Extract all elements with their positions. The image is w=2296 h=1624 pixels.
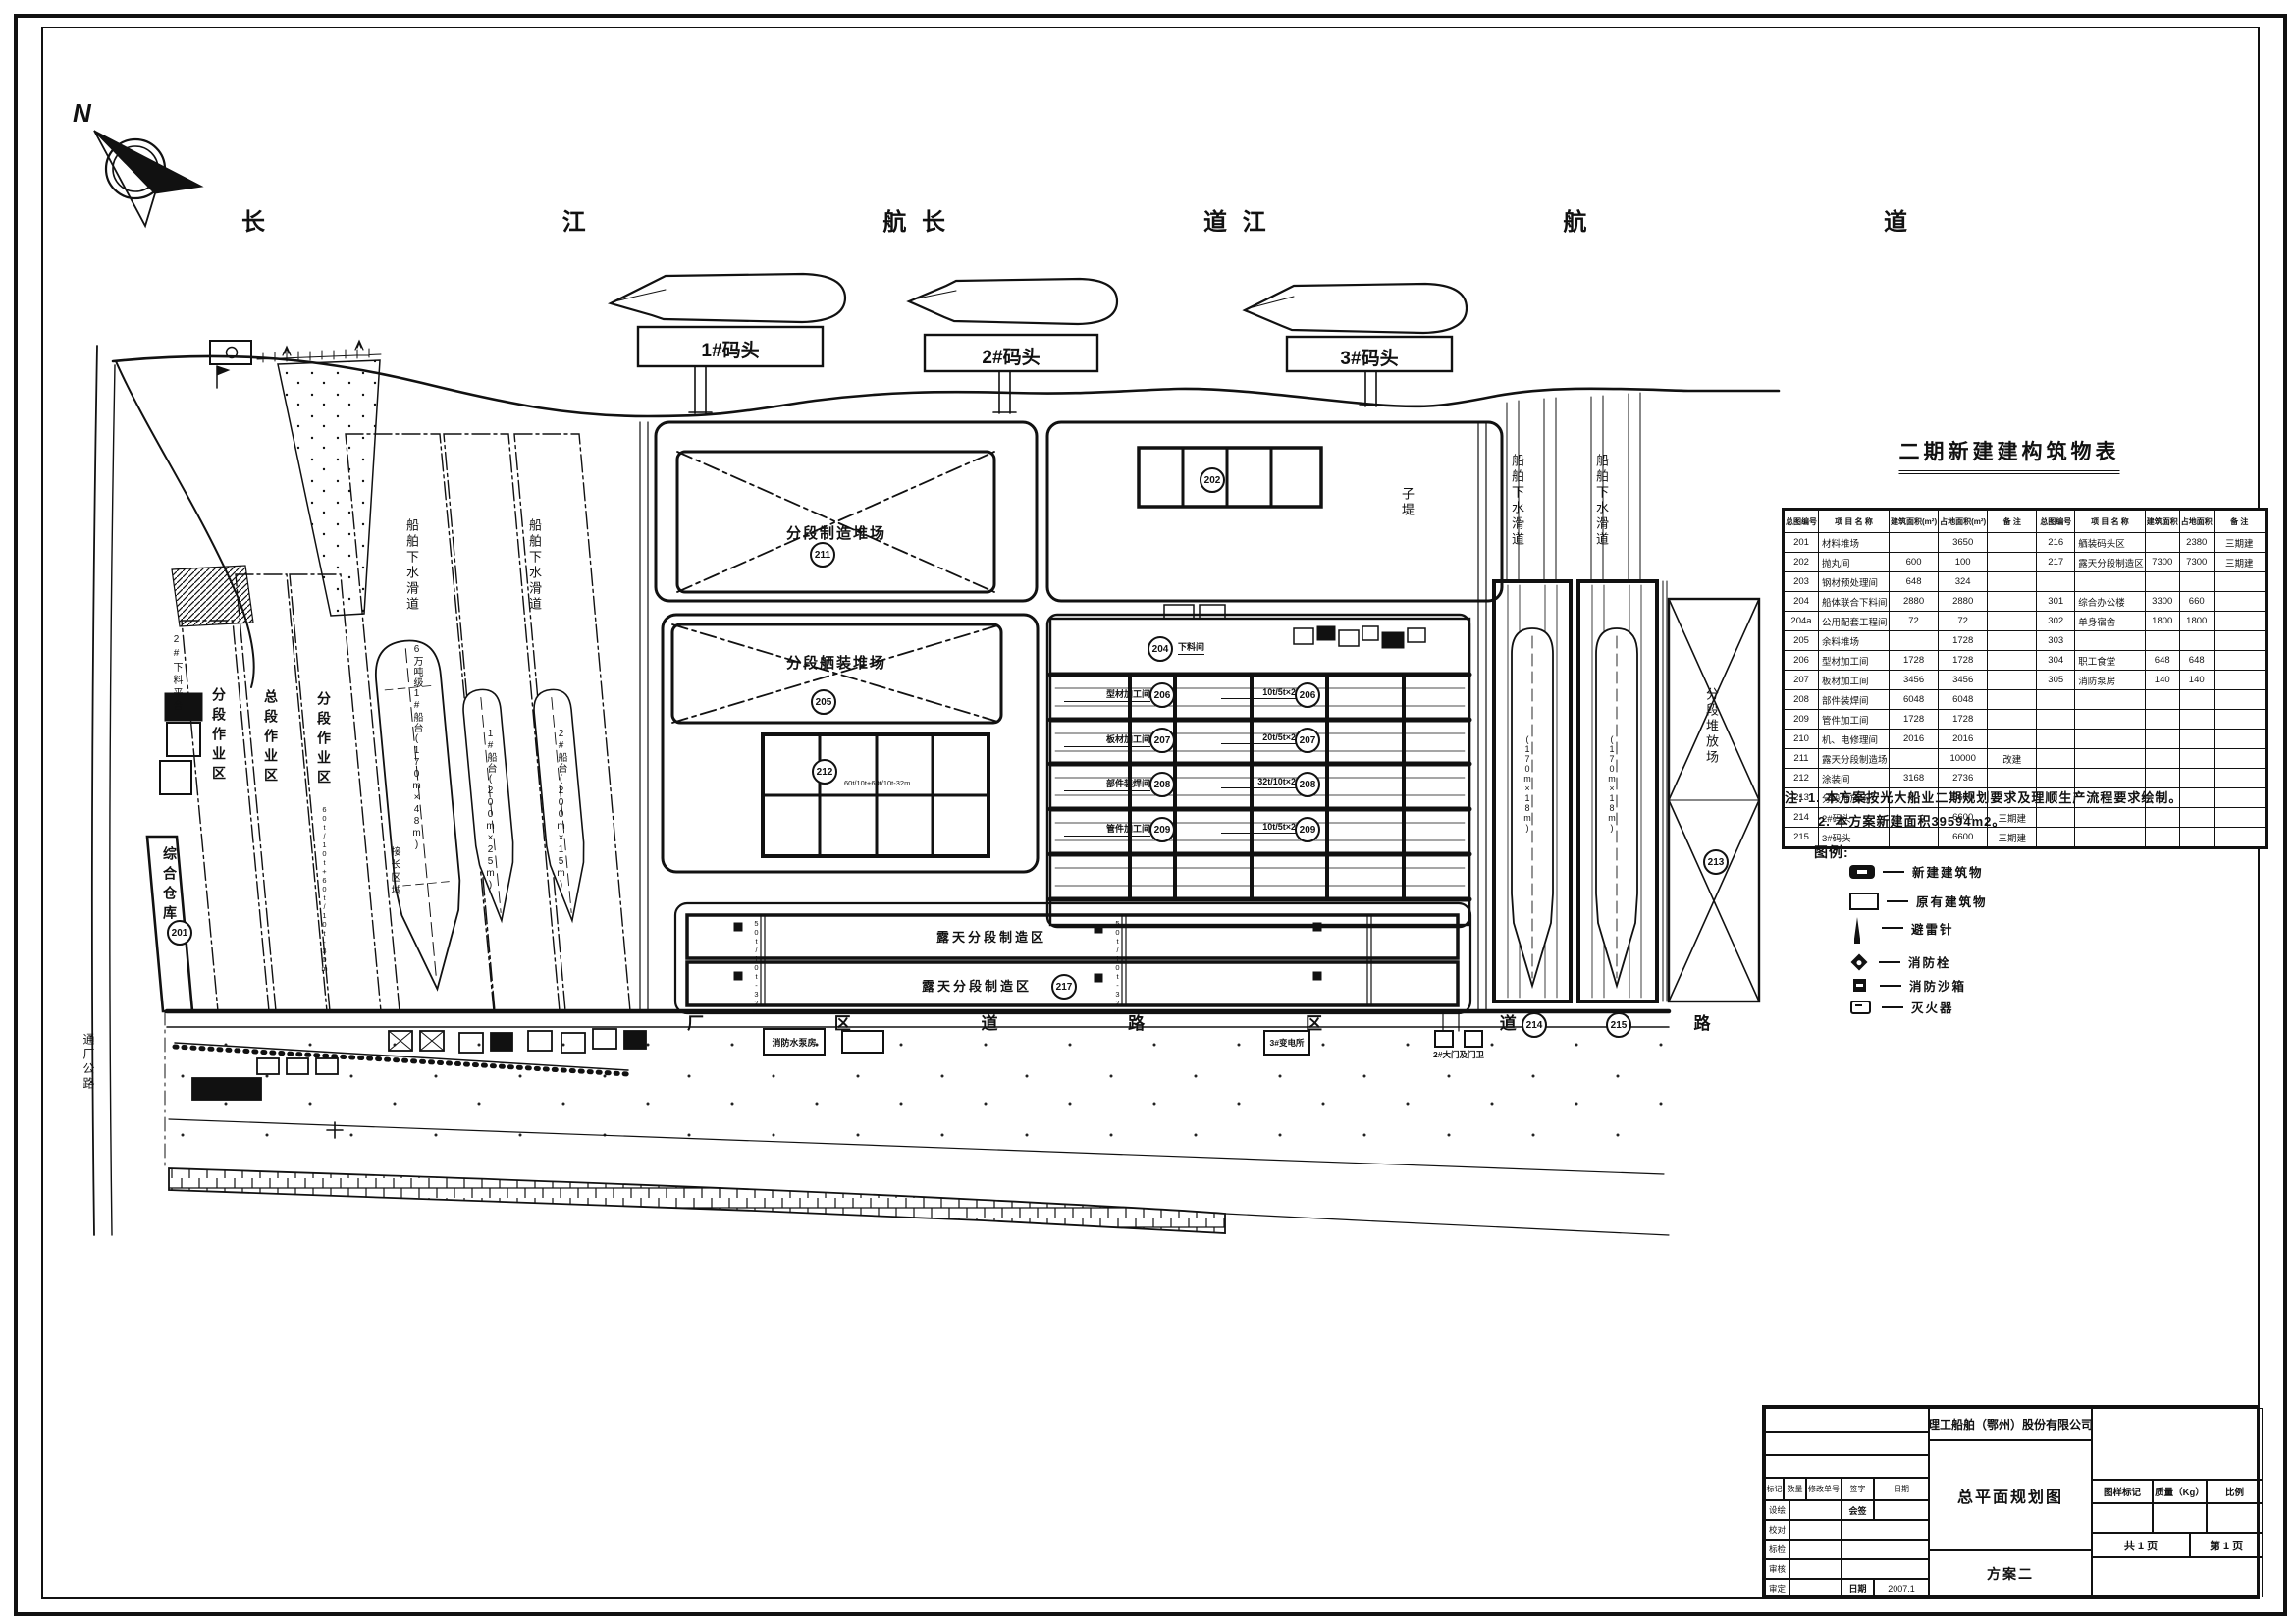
note-1: 注: 1. 本方案按光大船业二期规划要求及理顺生产流程要求绘制。 <box>1785 787 2182 806</box>
cell-name <box>2075 572 2146 592</box>
circle-complex-top: 204 <box>1148 636 1173 662</box>
col-header: 总图编号 <box>1784 510 1819 533</box>
cell-name: 余料堆场 <box>1819 631 1890 651</box>
cell-land-area <box>2179 808 2214 828</box>
cell-name: 消防泵房 <box>2075 671 2146 690</box>
company-name: 理工船舶（鄂州）股份有限公司 <box>1929 1408 2092 1440</box>
cell-built-area <box>2145 631 2179 651</box>
circle-channel-1: 214 <box>1522 1012 1547 1038</box>
cell-no: 301 <box>2037 592 2075 612</box>
legend-item-sandbox: 消防沙箱 <box>1853 976 1966 995</box>
cell-land-area: 2880 <box>1939 592 1988 612</box>
cell-land-area <box>2179 690 2214 710</box>
col-header: 总图编号 <box>2037 510 2075 533</box>
col-header: 项 目 名 称 <box>1819 510 1890 533</box>
structures-table-title: 二期新建建构筑物表 <box>1899 436 2120 474</box>
zone-fenduan-label-1: 分段作业区 <box>209 687 229 785</box>
table-row: 209 管件加工间 1728 1728 <box>1784 710 2267 730</box>
cell-no: 214 <box>1784 808 1819 828</box>
grid-building <box>763 734 988 856</box>
review-sign-cell <box>1789 1559 1842 1579</box>
countersign-label: 会签 <box>1842 1500 1874 1520</box>
scale-value <box>2207 1503 2263 1533</box>
cell-name: 涂装间 <box>1819 769 1890 788</box>
top-cell-building <box>1139 448 1321 507</box>
cell-no <box>2037 572 2075 592</box>
col-header: 建筑面积(m²) <box>1890 510 1939 533</box>
cell-built-area: 3300 <box>2145 592 2179 612</box>
cell-name: 露天分段制造区 <box>2075 553 2146 572</box>
approve-sign-cell <box>1789 1579 1842 1597</box>
countersign-cell <box>1874 1500 1929 1520</box>
circle-bay3-r: 208 <box>1295 772 1320 797</box>
qty-header: 数量 <box>1784 1478 1806 1500</box>
legend-dash <box>1883 871 1904 873</box>
workshop-label-3: 部件装焊间 <box>1064 777 1150 791</box>
revision-cell <box>1765 1455 1929 1478</box>
cell-land-area: 1800 <box>2179 612 2214 631</box>
table-row: 207 板材加工间 3456 3456 305 消防泵房 140 140 <box>1784 671 2267 690</box>
slipway-label-1: 船舶下水滑道 <box>402 518 421 613</box>
legend-label: 消防栓 <box>1908 952 1951 971</box>
page-number: 第 1 页 <box>2190 1533 2263 1557</box>
role-standard: 标检 <box>1765 1540 1789 1559</box>
cell-no: 205 <box>1784 631 1819 651</box>
legend-label: 灭火器 <box>1911 998 1954 1016</box>
west-boundary <box>92 346 97 1235</box>
drawing-mark-cell <box>2092 1408 2263 1480</box>
cell-built-area <box>1890 631 1939 651</box>
cell-name: 钢材预处理间 <box>1819 572 1890 592</box>
date-header: 日期 <box>1874 1478 1929 1500</box>
joint-area-label: 接长区域 <box>387 846 401 897</box>
cell-built-area: 7300 <box>2145 553 2179 572</box>
zone-warehouse-label: 综合仓库 <box>160 846 180 925</box>
workshop-crane-4: 10t/5t×2 <box>1221 822 1296 834</box>
crane-note-1: 60t/10t+60t/10t-32m <box>844 779 910 787</box>
legend-item-hydrant: 消防栓 <box>1853 952 1951 971</box>
xyard-1-label: 分段制造堆场 <box>786 522 886 543</box>
cell-note <box>2214 788 2266 808</box>
cell-land-area <box>2179 730 2214 749</box>
scale-header: 比例 <box>2207 1480 2263 1503</box>
cell-land-area <box>2179 710 2214 730</box>
zone-fenduan-label-2: 分段作业区 <box>314 691 334 789</box>
yard-curbs <box>640 422 1502 1011</box>
cell-land-area: 72 <box>1939 612 1988 631</box>
bottom-right-cell <box>2092 1557 2263 1597</box>
legend-dash <box>1882 1006 1903 1008</box>
offsite-road-label: 通厂公路 <box>80 1033 97 1092</box>
cell-name: 型材加工间 <box>1819 651 1890 671</box>
cell-no: 217 <box>2037 553 2075 572</box>
legend-label: 原有建筑物 <box>1916 892 1988 910</box>
cell-built-area <box>2145 690 2179 710</box>
cell-name: 露天分段制造场 <box>1819 749 1890 769</box>
hatch-band <box>172 566 253 626</box>
substation-label: 3#变电所 <box>1270 1037 1305 1049</box>
circle-xyard2: 205 <box>811 689 836 715</box>
drawing-mark-value <box>2092 1503 2153 1533</box>
cell-built-area <box>2145 572 2179 592</box>
workshop-complex <box>1050 605 1469 925</box>
table-row: 212 涂装间 3168 2736 <box>1784 769 2267 788</box>
river-channel-label-2: 长 江 航 道 <box>922 202 2053 237</box>
cell-note <box>1988 592 2037 612</box>
check-sign-cell <box>1789 1520 1842 1540</box>
cell-no <box>2037 690 2075 710</box>
xyard-2-label: 分段舾装堆场 <box>786 652 886 673</box>
circle-bay4-l: 209 <box>1149 817 1175 842</box>
cell-no <box>2037 730 2075 749</box>
workshop-top-label: 下料间 <box>1178 640 1204 655</box>
berth-1-label: 6万吨级1#船台(170m×48m) <box>409 644 424 851</box>
cell-built-area <box>2145 769 2179 788</box>
cell-note <box>2214 612 2266 631</box>
cell-no <box>2037 749 2075 769</box>
cell-no <box>2037 769 2075 788</box>
cell-land-area: 140 <box>2179 671 2214 690</box>
legend-title: 图例: <box>1814 842 1849 862</box>
cell-note <box>1988 651 2037 671</box>
cell-land-area: 10000 <box>1939 749 1988 769</box>
drawing-mark-header: 图样标记 <box>2092 1480 2153 1503</box>
circle-bay2-r: 207 <box>1295 728 1320 753</box>
river-bank <box>116 361 254 687</box>
legend-dash <box>1879 961 1900 963</box>
cell-land-area: 660 <box>2179 592 2214 612</box>
workshop-crane-3: 32t/10t×2 <box>1221 777 1296 788</box>
cell-note <box>1988 572 2037 592</box>
workshop-label-4: 管件加工间 <box>1064 822 1150 837</box>
col-header: 备 注 <box>1988 510 2037 533</box>
circle-bay4-r: 209 <box>1295 817 1320 842</box>
mark-header: 标记 <box>1765 1478 1784 1500</box>
zone-zongduan-label: 总段作业区 <box>261 689 281 787</box>
cell-note <box>1988 710 2037 730</box>
cell-name <box>2075 631 2146 651</box>
weight-value <box>2153 1503 2207 1533</box>
cell-built-area: 648 <box>1890 572 1939 592</box>
cell-land-area <box>2179 631 2214 651</box>
table-header-row: 总图编号 项 目 名 称 建筑面积(m²) 占地面积(m²) 备 注 总图编号 … <box>1784 510 2267 533</box>
cell-note <box>2214 651 2266 671</box>
cell-no: 212 <box>1784 769 1819 788</box>
cell-land-area: 7300 <box>2179 553 2214 572</box>
role-review: 审核 <box>1765 1559 1789 1579</box>
stack-yard-label: 分段堆放场 <box>1702 687 1721 766</box>
zidi-label: 子堤 <box>1398 487 1416 518</box>
cell-no: 305 <box>2037 671 2075 690</box>
col-header: 占地面积 <box>2179 510 2214 533</box>
note-2: 2. 本方案新建面积39594m2。 <box>1818 811 2005 830</box>
stack-yard <box>1669 599 1759 1001</box>
cell-note <box>2214 690 2266 710</box>
circle-grid: 212 <box>812 759 837 785</box>
cell-name <box>2075 730 2146 749</box>
table-row: 206 型材加工间 1728 1728 304 职工食堂 648 648 <box>1784 651 2267 671</box>
cell-built-area: 3456 <box>1890 671 1939 690</box>
cell-no: 216 <box>2037 533 2075 553</box>
cell-name: 部件装焊间 <box>1819 690 1890 710</box>
cell-name: 抛丸间 <box>1819 553 1890 572</box>
cell-land-area: 6048 <box>1939 690 1988 710</box>
table-row: 202 抛丸间 600 100 217 露天分段制造区 7300 7300 三期… <box>1784 553 2267 572</box>
cell-land-area <box>2179 572 2214 592</box>
lightning-rod-symbol <box>1854 917 1860 939</box>
design-sign-cell <box>1789 1500 1842 1520</box>
cell-note <box>1988 690 2037 710</box>
cell-name: 职工食堂 <box>2075 651 2146 671</box>
legend-item-new-building: 新建建筑物 <box>1849 862 1984 881</box>
legend-item-extinguisher: 灭火器 <box>1850 998 1954 1016</box>
cell-built-area <box>2145 533 2179 553</box>
cell-no <box>2037 828 2075 848</box>
circle-bay1-r: 206 <box>1295 682 1320 708</box>
cell-no: 204a <box>1784 612 1819 631</box>
cell-land-area: 100 <box>1939 553 1988 572</box>
pump-house-label: 消防水泵房 <box>772 1036 816 1049</box>
legend-label: 避雷针 <box>1911 919 1954 938</box>
gate-label: 2#大门及门卫 <box>1433 1049 1484 1060</box>
cell-land-area <box>2179 788 2214 808</box>
cell-note <box>1988 553 2037 572</box>
circle-bay2-l: 207 <box>1149 728 1175 753</box>
cell-land-area: 3650 <box>1939 533 1988 553</box>
cell-no <box>2037 808 2075 828</box>
pages-total: 共 1 页 <box>2092 1533 2190 1557</box>
circle-topcell: 202 <box>1200 467 1225 493</box>
fire-hydrant-symbol <box>1851 953 1868 970</box>
embankment-ext <box>1225 1214 1669 1235</box>
west-boundary-2 <box>110 365 115 1235</box>
crane-note-2: 50t/10t-32m <box>752 919 761 1016</box>
circle-xyard1: 211 <box>810 542 835 568</box>
cell-name <box>2075 828 2146 848</box>
cell-name: 单身宿舍 <box>2075 612 2146 631</box>
cell-note <box>2214 808 2266 828</box>
cell-name: 舾装码头区 <box>2075 533 2146 553</box>
cell-land-area: 1728 <box>1939 651 1988 671</box>
legend-item-lightning-rod: 避雷针 <box>1854 917 1954 939</box>
new-building-symbol <box>1849 865 1875 879</box>
cell-note: 三期建 <box>2214 533 2266 553</box>
cell-land-area: 3456 <box>1939 671 1988 690</box>
cell-note: 改建 <box>1988 749 2037 769</box>
cell-built-area: 2880 <box>1890 592 1939 612</box>
col-header: 建筑面积 <box>2145 510 2179 533</box>
revision-cell <box>1765 1408 1929 1432</box>
cell-built-area: 3168 <box>1890 769 1939 788</box>
road-label-2: 区 道 路 <box>1306 1009 1796 1034</box>
legend-dash <box>1882 927 1903 929</box>
revision-cell <box>1765 1432 1929 1455</box>
legend-label: 新建建筑物 <box>1912 862 1984 881</box>
cell-note: 三期建 <box>2214 553 2266 572</box>
cell-name <box>2075 710 2146 730</box>
cell-land-area <box>2179 828 2214 848</box>
drawing-sheet: N 长 江 航 道 长 江 航 道 1#码头 2#码头 3#码头 船舶下水滑道 … <box>0 0 2296 1624</box>
table-row: 204a 公用配套工程间 72 72 302 单身宿舍 1800 1800 <box>1784 612 2267 631</box>
cell-no: 209 <box>1784 710 1819 730</box>
cell-no: 206 <box>1784 651 1819 671</box>
workshop-label-1: 型材加工间 <box>1064 687 1150 702</box>
berth-2-label: 1#船台(200m×25m) <box>483 729 498 892</box>
cell-built-area: 1800 <box>2145 612 2179 631</box>
review-date-cell <box>1842 1559 1929 1579</box>
cell-note <box>2214 749 2266 769</box>
channel-1-dim: (170m×18m) <box>1522 734 1532 833</box>
table-row: 203 钢材预处理间 648 324 <box>1784 572 2267 592</box>
check-date-cell <box>1842 1520 1929 1540</box>
cell-name <box>2075 769 2146 788</box>
crane-note-3: 50t/10t-32m <box>1113 919 1122 1016</box>
cell-no: 204 <box>1784 592 1819 612</box>
table-row: 210 机、电修理间 2016 2016 <box>1784 730 2267 749</box>
legend-item-existing-building: 原有建筑物 <box>1849 892 1988 910</box>
cell-built-area: 1728 <box>1890 710 1939 730</box>
circle-warehouse: 201 <box>167 920 192 946</box>
table-row: 211 露天分段制造场 10000 改建 <box>1784 749 2267 769</box>
crane-note-4: 60t/10t+60t/10t-30m <box>320 805 329 973</box>
cell-note <box>1988 671 2037 690</box>
cell-built-area <box>2145 828 2179 848</box>
legend-dash <box>1887 900 1908 902</box>
cell-note <box>2214 828 2266 848</box>
compass-north-label: N <box>73 98 91 129</box>
cell-note <box>1988 769 2037 788</box>
cell-note <box>2214 631 2266 651</box>
cell-built-area <box>1890 828 1939 848</box>
cell-built-area <box>1890 749 1939 769</box>
cell-note <box>2214 671 2266 690</box>
cell-built-area <box>2145 710 2179 730</box>
drawing-title: 总平面规划图 <box>1929 1440 2092 1550</box>
cell-no: 211 <box>1784 749 1819 769</box>
table-row: 215 3#码头 6600 三期建 <box>1784 828 2267 848</box>
pier-1-label: 1#码头 <box>701 336 759 362</box>
slipway-label-3: 船舶下水滑道 <box>1508 454 1526 548</box>
openair-strips <box>675 903 1470 1013</box>
cell-note: 三期建 <box>1988 828 2037 848</box>
cell-built-area: 648 <box>2145 651 2179 671</box>
xyard-2 <box>672 624 1001 723</box>
berth-3-label: 2#船台(200m×15m) <box>554 729 568 892</box>
signature-header: 签字 <box>1842 1478 1874 1500</box>
date-label: 日期 <box>1842 1579 1874 1597</box>
cell-land-area: 6600 <box>1939 828 1988 848</box>
standard-sign-cell <box>1789 1540 1842 1559</box>
openair-label-1: 露天分段制造区 <box>936 927 1046 946</box>
cell-note <box>1988 612 2037 631</box>
pier-2-label: 2#码头 <box>982 343 1040 369</box>
cell-land-area: 2380 <box>2179 533 2214 553</box>
cell-no: 210 <box>1784 730 1819 749</box>
standard-date-cell <box>1842 1540 1929 1559</box>
col-header: 备 注 <box>2214 510 2266 533</box>
cell-built-area: 72 <box>1890 612 1939 631</box>
workshop-crane-1: 10t/5t×2 <box>1221 687 1296 699</box>
circle-stack: 213 <box>1703 849 1729 875</box>
cell-name <box>2075 749 2146 769</box>
scheme-label: 方案二 <box>1929 1550 2092 1597</box>
fire-extinguisher-symbol <box>1850 1001 1871 1014</box>
cell-note <box>1988 631 2037 651</box>
openair-label-2: 露天分段制造区 <box>922 976 1032 995</box>
cell-note <box>2214 710 2266 730</box>
cell-note <box>1988 533 2037 553</box>
cell-name: 管件加工间 <box>1819 710 1890 730</box>
cell-built-area <box>2145 749 2179 769</box>
cell-no: 201 <box>1784 533 1819 553</box>
weight-header: 质量（Kg） <box>2153 1480 2207 1503</box>
cell-built-area: 140 <box>2145 671 2179 690</box>
cell-no: 202 <box>1784 553 1819 572</box>
col-header: 占地面积(m²) <box>1939 510 1988 533</box>
cell-land-area: 324 <box>1939 572 1988 592</box>
col-header: 项 目 名 称 <box>2075 510 2146 533</box>
title-block: 标记 数量 修改单号 签字 日期 设绘 会签 校对 标检 审核 审定 日期 20… <box>1762 1405 2260 1597</box>
existing-building-symbol <box>1849 893 1879 910</box>
embankment <box>169 1168 1225 1233</box>
table-row: 201 材料堆场 3650 216 舾装码头区 2380 三期建 <box>1784 533 2267 553</box>
cell-name: 船体联合下料间 <box>1819 592 1890 612</box>
cell-no: 207 <box>1784 671 1819 690</box>
role-check: 校对 <box>1765 1520 1789 1540</box>
table-row: 208 部件装焊间 6048 6048 <box>1784 690 2267 710</box>
slipway-label-4: 船舶下水滑道 <box>1592 454 1611 548</box>
cell-land-area: 648 <box>2179 651 2214 671</box>
channel-2-dim: (170m×18m) <box>1607 734 1617 833</box>
cell-no: 303 <box>2037 631 2075 651</box>
cell-note <box>2214 730 2266 749</box>
cell-name: 板材加工间 <box>1819 671 1890 690</box>
cell-note <box>2214 572 2266 592</box>
cell-name: 材料堆场 <box>1819 533 1890 553</box>
circle-channel-2: 215 <box>1606 1012 1631 1038</box>
road-label-1: 厂 区 道 路 <box>687 1009 1207 1034</box>
circle-bay3-l: 208 <box>1149 772 1175 797</box>
cell-no: 203 <box>1784 572 1819 592</box>
cell-land-area <box>2179 769 2214 788</box>
cell-name <box>2075 808 2146 828</box>
fire-sandbox-symbol <box>1853 979 1866 992</box>
circle-bay1-l: 206 <box>1149 682 1175 708</box>
zone-platform-label: 2#下料平台 <box>169 634 184 713</box>
workshop-crane-2: 20t/5t×2 <box>1221 732 1296 744</box>
cell-built-area: 2016 <box>1890 730 1939 749</box>
cell-name: 综合办公楼 <box>2075 592 2146 612</box>
cell-built-area: 600 <box>1890 553 1939 572</box>
circle-openair: 217 <box>1051 974 1077 1000</box>
cell-land-area: 2016 <box>1939 730 1988 749</box>
date-value: 2007.1 <box>1874 1579 1929 1597</box>
table-row: 205 余料堆场 1728 303 <box>1784 631 2267 651</box>
cell-built-area: 1728 <box>1890 651 1939 671</box>
legend-label: 消防沙箱 <box>1909 976 1966 995</box>
cell-land-area <box>2179 749 2214 769</box>
slipway-label-2: 船舶下水滑道 <box>525 518 544 613</box>
cell-note <box>1988 730 2037 749</box>
cell-built-area <box>2145 730 2179 749</box>
cell-name <box>2075 690 2146 710</box>
table-row: 204 船体联合下料间 2880 2880 301 综合办公楼 3300 660 <box>1784 592 2267 612</box>
pier-3-label: 3#码头 <box>1340 344 1398 370</box>
cell-no: 302 <box>2037 612 2075 631</box>
cell-no: 304 <box>2037 651 2075 671</box>
cell-name: 机、电修理间 <box>1819 730 1890 749</box>
cell-land-area: 1728 <box>1939 631 1988 651</box>
